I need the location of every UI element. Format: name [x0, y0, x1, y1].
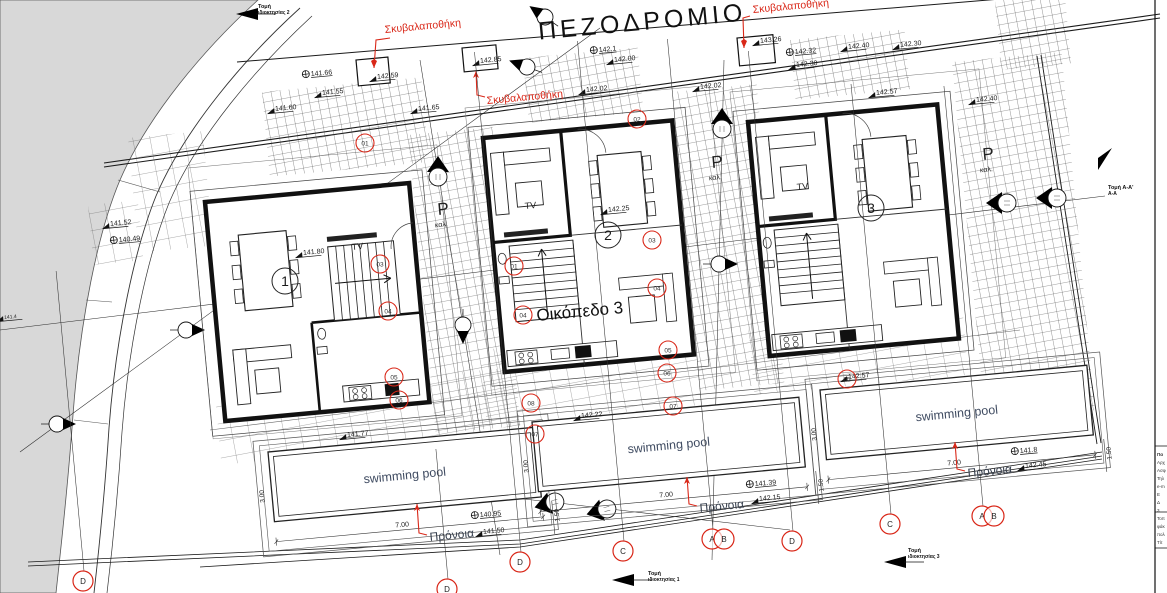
pool-dim-length: 7.00: [395, 521, 409, 529]
svg-text:06: 06: [663, 371, 671, 378]
section-label: Τομή Α-Α'Α-Α: [1108, 185, 1134, 197]
svg-text:04: 04: [384, 309, 392, 316]
site-plan-canvas: swimming pool7.003.001.50swimming pool7.…: [0, 0, 1167, 593]
svg-text:1: 1: [281, 273, 289, 289]
pool-dim-offset: 1.50: [1105, 446, 1113, 460]
svg-text:D: D: [517, 558, 523, 567]
svg-text:D: D: [789, 537, 795, 546]
title-block-text: e-m: [1157, 484, 1165, 489]
svg-text:ιδιοκτησίας 2: ιδιοκτησίας 2: [258, 10, 290, 16]
svg-text:05: 05: [664, 348, 672, 355]
svg-text:Α-Α: Α-Α: [1108, 191, 1117, 197]
svg-text:02: 02: [633, 117, 641, 124]
section-label: Τομήιδιοκτησίας 1: [612, 571, 680, 586]
svg-text:08: 08: [527, 401, 535, 408]
title-block-text: Πα: [1157, 452, 1163, 457]
house-1: [190, 170, 445, 436]
svg-text:01: 01: [510, 264, 518, 271]
svg-text:B: B: [991, 512, 996, 521]
svg-text:03: 03: [376, 262, 384, 269]
svg-text:D: D: [80, 577, 86, 586]
svg-text:Ρ: Ρ: [437, 199, 450, 219]
svg-text:3: 3: [867, 200, 875, 216]
elevation-marker: 142.45: [1017, 461, 1047, 471]
house-2: [468, 107, 709, 386]
svg-text:καλ.: καλ.: [435, 221, 449, 229]
elevation-marker: 141.8: [1011, 446, 1038, 456]
svg-text:143.26: 143.26: [760, 36, 782, 45]
svg-text:142.57: 142.57: [876, 88, 898, 97]
svg-text:03: 03: [648, 238, 656, 245]
title-block-text: Τηλ: [1157, 476, 1165, 481]
svg-text:D: D: [444, 585, 450, 593]
hatch-zone-parking-3: [952, 52, 1095, 421]
svg-text:05: 05: [843, 377, 851, 384]
pool-dim-offset: 1.50: [817, 478, 825, 492]
svg-text:141.4: 141.4: [4, 314, 17, 321]
title-block-text: Ασφ: [1157, 468, 1166, 473]
pool-dim-length: 7.00: [659, 491, 673, 499]
svg-text:04: 04: [519, 313, 527, 320]
svg-text:142.15: 142.15: [759, 494, 781, 503]
elevation-marker: 142.15: [751, 494, 781, 504]
svg-text:Πρόνοια: Πρόνοια: [429, 526, 475, 544]
elevation-marker: 141.39: [746, 478, 777, 489]
svg-text:B: B: [721, 535, 726, 544]
title-block-text: πολ: [1157, 532, 1165, 537]
hatch-zone: [128, 131, 213, 252]
tv-label: TV: [796, 181, 808, 192]
svg-text:ιδιοκτησίας 3: ιδιοκτησίας 3: [908, 554, 940, 560]
title-block-text: Ε: [1157, 492, 1160, 497]
elevation-marker: 140.95: [471, 509, 502, 520]
svg-text:C: C: [887, 520, 893, 529]
hatch-zone: [995, 0, 1071, 70]
svg-text:142.85: 142.85: [480, 56, 502, 65]
svg-text:141.39: 141.39: [755, 479, 777, 488]
pool-dim-width: 3.00: [258, 489, 266, 503]
svg-text:141.8: 141.8: [1020, 447, 1038, 456]
svg-text:07: 07: [531, 432, 539, 439]
svg-text:καλ.: καλ.: [980, 166, 994, 174]
tv-label: TV: [351, 241, 363, 252]
elevation-marker: 141.66: [302, 68, 333, 79]
svg-text:ιδιοκτησίας 1: ιδιοκτησίας 1: [648, 577, 680, 583]
title-block-text: Τοπ: [1157, 516, 1165, 521]
svg-text:Σκυβαλαποθήκη: Σκυβαλαποθήκη: [384, 17, 461, 36]
tv-label: TV: [524, 200, 536, 211]
title-block-text: Αρχ: [1157, 460, 1166, 465]
svg-text:06: 06: [395, 398, 403, 405]
svg-text:141.65: 141.65: [418, 104, 440, 113]
svg-text:05: 05: [390, 375, 398, 382]
title-block-text: Τίτ: [1157, 540, 1163, 545]
title-block: ΠαΑρχΑσφΤηλe-mΕΔ3ΤοπφάκπολΤίτ: [1155, 0, 1167, 593]
house-3: [733, 91, 974, 370]
svg-text:140.95: 140.95: [480, 510, 502, 519]
svg-text:C: C: [620, 547, 626, 556]
hatch-zone: [262, 77, 429, 176]
grid-bubble-B: B: [984, 506, 1004, 526]
title-block-text: φάκ: [1157, 523, 1166, 529]
pronoia-label: Πρόνοια: [684, 477, 745, 515]
svg-text:Ρ: Ρ: [982, 144, 995, 164]
title-block-text: Δ: [1157, 500, 1160, 505]
pool-dim-length: 7.00: [947, 459, 961, 467]
street-label: ΠΕΖΟΔΡΟΜΙΟ: [537, 0, 748, 46]
svg-text:Ρ: Ρ: [711, 152, 724, 172]
drawing-sheet: swimming pool7.003.001.50swimming pool7.…: [0, 0, 1167, 593]
pool-dim-width: 3.00: [522, 459, 530, 473]
svg-text:καλ.: καλ.: [709, 174, 723, 182]
svg-text:01: 01: [361, 141, 369, 148]
svg-text:141.66: 141.66: [311, 69, 333, 78]
svg-text:04: 04: [653, 286, 661, 293]
svg-text:2: 2: [604, 227, 612, 243]
svg-text:07: 07: [669, 404, 677, 411]
pool-dim-width: 3.00: [810, 427, 818, 441]
svg-text:Πρόνοια: Πρόνοια: [699, 497, 745, 515]
grid-bubble-B: B: [714, 529, 734, 549]
section-label: Τομήιδιοκτησίας 3: [884, 548, 940, 568]
